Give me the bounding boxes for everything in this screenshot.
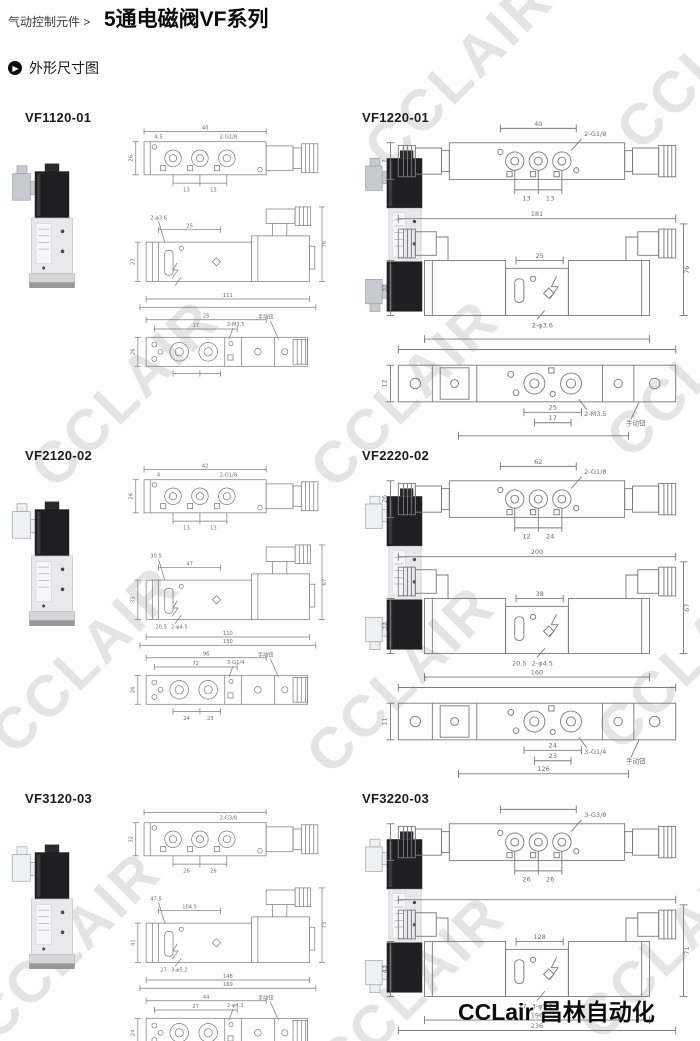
dim-label: 169 [223,982,233,988]
dim-label: 72 [193,661,200,667]
manual-override-label: 手动钮 [626,418,646,427]
top-view: 3-G3/8 26 26 [387,805,676,883]
valve-product-photo [7,158,87,291]
dim-label: 43 [381,965,389,973]
dim-label: 47.5 [150,896,161,902]
dim-label: 26 [129,493,135,500]
dimension-drawing: 40 2-G1/8 13 13 7 181 [380,114,694,452]
port-spec-label: 2-G1/8 [220,473,238,479]
dimension-drawing: 2-G3/8 26 26 32 [113,801,351,1041]
top-view: 42 4 2-G1/8 13 13 26 [129,463,318,531]
dim-label: 30.5 [150,553,161,559]
hole-spec-label: 2-φ3.6 [532,321,553,329]
dim-label: 32 [129,836,135,843]
dim-label: 33 [381,622,389,630]
page-title: 5通电磁阀VF系列 [104,3,269,33]
dim-label: 26 [129,155,135,162]
dim-label: 150 [223,639,233,645]
dim-label: 33 [131,596,137,603]
dim-label: 23 [549,752,557,760]
section-header: ▶ 外形尺寸图 [8,58,99,78]
dim-label: 27 [193,1004,200,1010]
bottom-view: 44 27 2-φ4.3 手动钮 24 [131,994,308,1041]
product-section: VF1220-01 40 2-G1/8 [352,106,700,444]
play-icon: ▶ [8,61,22,75]
dim-label: 26 [522,875,530,883]
dim-label: 24 [549,742,557,750]
port-spec-label: 3-G3/8 [584,811,606,819]
dim-label: 200 [531,548,543,556]
dim-label: 13 [183,525,190,531]
dim-label: 27 [131,258,137,265]
company-logo-text: CCLair 昌林自动化 [458,993,655,1027]
top-view: 40 4.5 2-G1/8 13 13 26 [129,125,318,193]
port-spec-label: 2-G3/8 [220,816,238,822]
dim-label: 71 [683,947,691,955]
front-view: 181 25 2-φ3.6 [381,210,691,353]
dim-label: 104.5 [182,905,197,911]
dim-label: 160 [531,668,543,676]
valve-product-photo [7,496,87,629]
front-view: 200 38 20.5 2-φ4.5 160 [381,548,691,691]
dim-label: 42 [202,463,209,469]
manual-override-label: 手动钮 [258,651,273,659]
side-view: 25 2-φ3.6 111 76 27 [131,207,328,310]
dim-label: 25 [549,404,557,412]
dim-label: 17 [549,414,557,422]
manual-override-label: 手动钮 [626,756,646,765]
port-spec-label: 2-G1/8 [220,135,238,141]
dim-label: 7 [381,159,389,163]
model-label: VF3120-03 [25,791,92,806]
dim-label: 38 [535,590,543,598]
manual-override-label: 手动钮 [258,994,273,1002]
dim-label: 2-φ3.6 [150,215,167,221]
dim-label: 41 [131,939,137,946]
dim-label: 13 [522,194,530,202]
top-view: 2-G3/8 26 26 32 [129,809,318,874]
bottom-view: 96 72 3-G1/4 手动钮 24 23 26 [131,651,308,722]
top-view: 40 2-G1/8 13 13 7 [381,120,676,203]
dim-label: 73 [322,922,328,929]
hole-spec-label: 3-φ5.2 [171,968,188,974]
dim-label: 33 [381,284,389,292]
product-section: VF2120-02 42 4 2-G1/8 [15,444,363,782]
product-section: VF1120-01 40 4.5 2-G1/8 [15,106,363,444]
dim-label: 20.5 [512,659,527,667]
dim-label: 26 [131,349,137,356]
port-spec-label: 3-G1/4 [584,748,606,756]
side-view: 47 30.5 20.5 2-φ4.5 110 150 67 33 [131,545,328,648]
dim-label: 26 [546,875,554,883]
port-spec-label: 3-G1/4 [227,660,245,666]
hole-spec-label: 2-φ4.5 [171,625,188,631]
dim-label: 13 [183,187,190,193]
dim-label: 148 [223,974,233,980]
dim-label: 13 [210,525,217,531]
page: CCLAIR CCLAIR CCLAIR CCLAIR CCLAIR CCLAI… [0,0,700,1041]
dim-label: 12 [522,532,530,540]
dim-label: 47 [186,562,193,568]
side-view: 104.5 47.5 27 3-φ5.2 148 169 73 41 [131,888,328,991]
dim-label: 181 [531,210,543,218]
dim-label: 126 [537,765,549,773]
dim-label: 110 [223,631,233,637]
port-spec-label: 2-M3.5 [227,322,245,328]
dim-label: 4 [157,473,160,479]
dim-label: 24 [131,1030,137,1037]
product-section: VF2220-02 62 2-G1/8 [352,444,700,782]
dim-label: 67 [683,604,691,612]
dimension-drawing: 40 4.5 2-G1/8 13 13 26 [113,120,351,387]
dim-label: 24 [183,716,190,722]
dim-label: 23 [207,716,214,722]
hole-spec-label: 2-φ4.5 [532,659,553,667]
dim-label: 25 [535,252,543,260]
bottom-view: 11 24 23 126 3-G1/4 手动钮 [381,703,676,778]
dim-label: 40 [202,125,209,131]
breadcrumb[interactable]: 气动控制元件 > [8,13,90,30]
bottom-view: 25 17 2-M3.5 手动钮 26 [131,313,308,377]
dim-label: 26 [183,868,190,874]
dim-label: 40 [534,120,542,128]
dim-label: 27 [160,968,167,974]
valve-product-photo [7,839,87,972]
dim-label: 44 [203,995,210,1001]
product-section: VF3120-03 2-G3/8 [15,787,363,1041]
port-spec-label: 2-φ4.3 [227,1003,244,1009]
dim-label: 67 [322,579,328,586]
port-spec-label: 2-G1/8 [584,468,606,476]
manual-override-label: 手动钮 [258,313,273,321]
dim-label: 11 [381,717,389,725]
dim-label: 13 [210,187,217,193]
port-spec-label: 2-G1/8 [584,130,606,138]
bottom-view: 12 25 17 2-M3.5 手动钮 [381,365,676,440]
dim-label: 62 [534,458,542,466]
dim-label: 26 [381,495,389,503]
model-label: VF1120-01 [25,110,91,125]
model-label: VF2120-02 [25,448,92,463]
dim-label: 111 [223,293,233,299]
port-spec-label: 2-M3.5 [584,410,607,418]
dim-label: 76 [683,266,691,274]
dim-label: 26 [210,868,217,874]
dim-label: 26 [131,687,137,694]
dim-label: 128 [533,933,545,941]
dim-label: 4.5 [154,135,162,141]
dim-label: 12 [381,379,389,387]
section-header-label: 外形尺寸图 [29,58,99,78]
dim-label: 24 [546,532,554,540]
dim-label: 17 [193,323,200,329]
dim-label: 96 [203,652,210,658]
dimension-drawing: 42 4 2-G1/8 13 13 26 [113,458,351,725]
dim-label: 13 [546,194,554,202]
dim-label: 25 [203,314,210,320]
dim-label: 25 [186,224,193,230]
dimension-drawing: 62 2-G1/8 12 24 26 200 [380,452,694,790]
dim-label: 76 [322,241,328,248]
top-view: 62 2-G1/8 12 24 26 [381,458,676,541]
dim-label: 20.5 [155,625,166,631]
